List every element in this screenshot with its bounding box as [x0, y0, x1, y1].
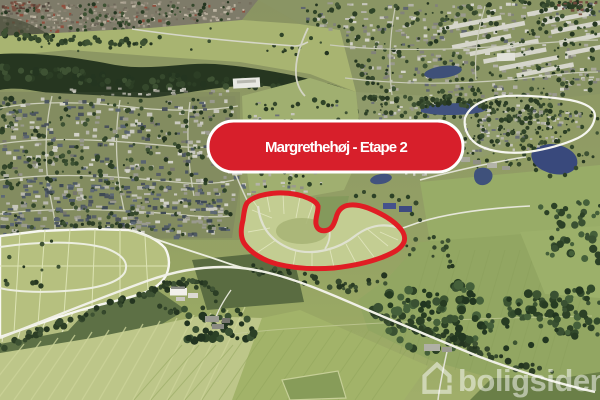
svg-text:boligsiden: boligsiden: [458, 363, 600, 398]
svg-text:Margrethehøj - Etape 2: Margrethehøj - Etape 2: [265, 139, 407, 156]
